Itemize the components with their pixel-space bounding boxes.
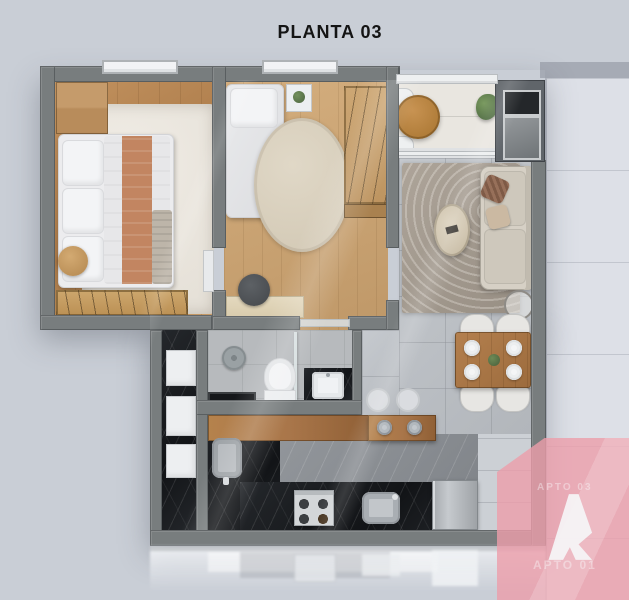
- wall-service-right: [196, 330, 208, 532]
- plate: [464, 340, 480, 356]
- bed-terracotta-throw: [122, 136, 152, 284]
- desk-chair: [238, 274, 270, 306]
- bar-plate: [407, 420, 422, 435]
- bedroom2-open-wardrobe: [344, 86, 388, 204]
- wall-bathroom-right: [352, 330, 362, 402]
- brand-logo-icon: [537, 492, 595, 562]
- balcony-table: [396, 95, 440, 139]
- dining-chair: [496, 386, 530, 412]
- stove-cooktop: [294, 490, 334, 526]
- wall-bedroom-divider: [212, 66, 226, 248]
- sink-faucet: [223, 477, 229, 485]
- shower-head: [222, 346, 246, 370]
- bathroom-door: [300, 319, 350, 327]
- bed-knit-throw: [152, 210, 172, 284]
- wall-bedroom2-bottom: [212, 316, 300, 330]
- wall-bedroom2-east: [386, 66, 399, 248]
- sink-faucet: [392, 494, 398, 500]
- table-centerpiece-plant: [488, 354, 500, 366]
- laundry-unit: [166, 396, 196, 436]
- wardrobe-shelf: [344, 204, 388, 218]
- bar-stool: [396, 388, 420, 412]
- laundry-unit: [166, 444, 196, 478]
- bar-plate: [377, 420, 392, 435]
- plate: [464, 364, 480, 380]
- floor-plan-title: PLANTA 03: [240, 22, 420, 43]
- bedroom1-wardrobe: [56, 82, 108, 134]
- plate: [506, 340, 522, 356]
- bedroom2-oval-rug: [254, 118, 350, 252]
- bedroom1-side-table: [58, 246, 88, 276]
- bedroom2-window: [262, 60, 338, 74]
- fridge: [432, 480, 478, 530]
- wall-bathroom-bottom: [196, 400, 362, 415]
- bed-pillow: [62, 188, 104, 234]
- balcony-rail: [396, 74, 498, 84]
- shaft-condenser: [503, 116, 541, 160]
- kitchen-sink-left: [212, 438, 242, 478]
- dining-chair: [460, 386, 494, 412]
- floor-plan-render: APTO 03 APTO 01 PLANTA 03: [0, 0, 629, 600]
- wall-left: [40, 66, 55, 330]
- bed-pillow: [62, 140, 104, 186]
- wall-service-left: [150, 330, 162, 546]
- watermark-overlay: APTO 03 APTO 01: [497, 438, 629, 600]
- bedroom1-window: [102, 60, 178, 74]
- vanity-faucet: [326, 373, 330, 377]
- wall-hall-stub: [386, 300, 399, 330]
- plan-reflection: [150, 546, 546, 600]
- wall-bottom: [150, 530, 546, 546]
- balcony-sliding-door-sill: [399, 148, 495, 158]
- watermark-label-bottom: APTO 01: [533, 558, 597, 572]
- bedroom1-door: [203, 250, 214, 292]
- wall-bedroom1-bottom: [40, 315, 212, 330]
- wall-bathroom-top-right: [348, 316, 388, 330]
- bar-stool: [366, 388, 390, 412]
- laundry-unit: [166, 350, 196, 386]
- plate: [506, 364, 522, 380]
- sofa-cushion: [484, 229, 526, 284]
- bed-pillow: [230, 88, 278, 128]
- shaft-ac-unit: [503, 90, 541, 116]
- neighbor-unit-top-bar: [540, 62, 629, 78]
- nightstand-plant: [293, 91, 305, 103]
- bedroom1-open-closet: [56, 290, 188, 316]
- toilet: [264, 358, 296, 394]
